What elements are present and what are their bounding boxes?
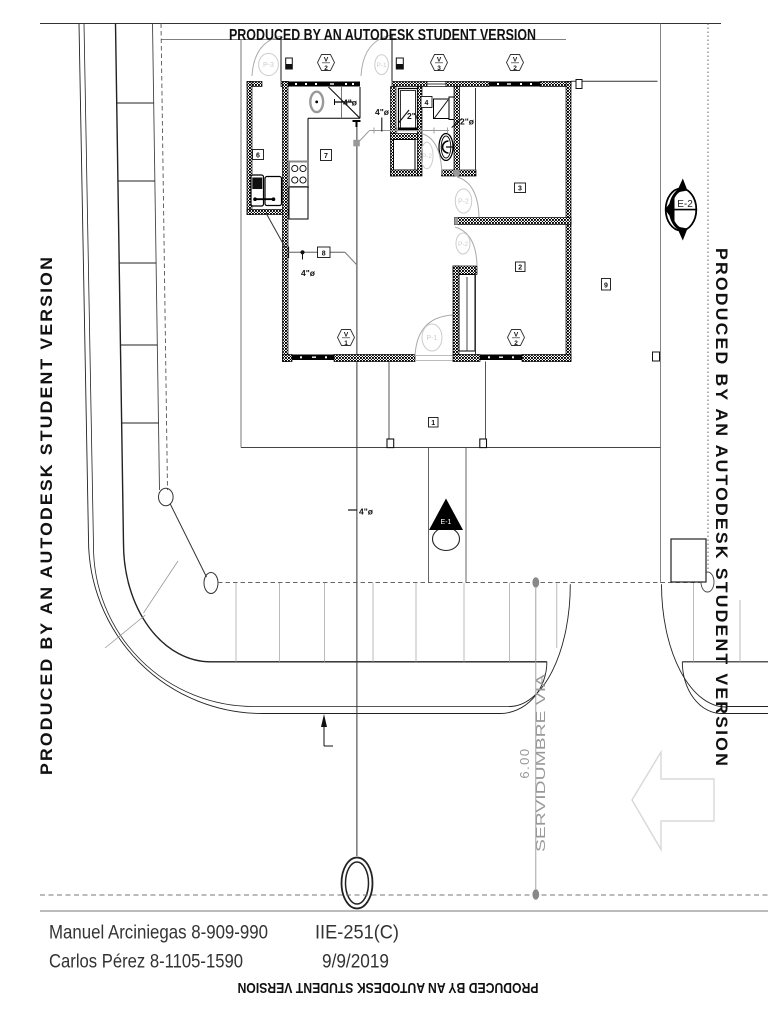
svg-text:4"ø: 4"ø <box>343 98 358 108</box>
svg-text:Carlos Pérez 8-1105-1590: Carlos Pérez 8-1105-1590 <box>49 952 243 973</box>
svg-text:P-2: P-2 <box>458 241 469 248</box>
svg-text:P-2: P-2 <box>458 199 469 206</box>
svg-text:SERVIDUMBRE VIA: SERVIDUMBRE VIA <box>533 674 548 852</box>
svg-text:PRODUCED BY AN AUTODESK STUDEN: PRODUCED BY AN AUTODESK STUDENT VERSION <box>712 248 730 768</box>
svg-text:P-1: P-1 <box>377 62 388 69</box>
svg-text:PRODUCED BY AN AUTODESK STUDEN: PRODUCED BY AN AUTODESK STUDENT VERSION <box>38 255 56 775</box>
svg-text:4"ø: 4"ø <box>301 268 316 278</box>
svg-text:6: 6 <box>256 153 260 160</box>
svg-text:E-2: E-2 <box>677 199 693 210</box>
svg-text:3: 3 <box>437 65 441 72</box>
svg-text:PRODUCED BY AN AUTODESK STUDEN: PRODUCED BY AN AUTODESK STUDENT VERSION <box>229 27 536 44</box>
svg-text:P-1: P-1 <box>427 335 438 342</box>
svg-text:3: 3 <box>518 186 522 193</box>
svg-text:Manuel Arciniegas 8-909-990: Manuel Arciniegas 8-909-990 <box>49 923 268 944</box>
svg-text:1: 1 <box>344 340 348 347</box>
svg-text:2: 2 <box>514 340 518 347</box>
svg-text:PRODUCED BY AN AUTODESK STUDEN: PRODUCED BY AN AUTODESK STUDENT VERSION <box>238 979 539 995</box>
svg-text:7: 7 <box>324 153 328 160</box>
svg-text:1: 1 <box>431 420 435 427</box>
svg-text:4: 4 <box>425 100 429 107</box>
svg-text:E-1: E-1 <box>441 519 452 526</box>
svg-text:9/9/2019: 9/9/2019 <box>322 952 389 973</box>
svg-text:4"ø: 4"ø <box>375 107 390 117</box>
svg-text:8: 8 <box>322 251 326 258</box>
svg-text:2: 2 <box>513 65 517 72</box>
svg-text:6.00: 6.00 <box>517 747 532 778</box>
svg-text:2: 2 <box>324 65 328 72</box>
svg-text:IIE-251(C): IIE-251(C) <box>315 923 399 944</box>
svg-text:9: 9 <box>604 283 608 290</box>
svg-text:2: 2 <box>518 265 522 272</box>
svg-text:P-2: P-2 <box>422 153 433 160</box>
svg-text:2"ø: 2"ø <box>460 117 475 127</box>
svg-text:P-3: P-3 <box>263 62 274 69</box>
svg-text:4"ø: 4"ø <box>359 507 374 517</box>
